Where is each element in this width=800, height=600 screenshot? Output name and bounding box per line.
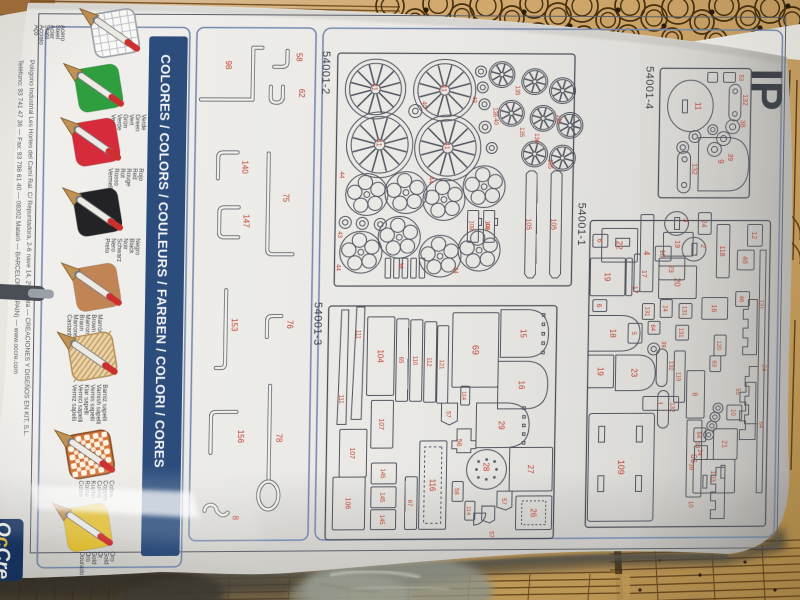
svg-text:114: 114 bbox=[465, 506, 471, 515]
svg-text:20: 20 bbox=[673, 278, 682, 287]
svg-text:19: 19 bbox=[596, 367, 605, 376]
svg-text:AceroSteelAcierStahlAcciaioAço: AceroSteelAcierStahlAcciaioAço bbox=[32, 25, 66, 46]
svg-text:17: 17 bbox=[631, 286, 638, 294]
svg-text:IP: IP bbox=[741, 69, 791, 111]
svg-text:132: 132 bbox=[668, 402, 674, 413]
svg-text:54001-3: 54001-3 bbox=[311, 302, 324, 346]
svg-text:27: 27 bbox=[526, 465, 535, 474]
svg-text:78: 78 bbox=[274, 434, 283, 443]
svg-text:48: 48 bbox=[741, 256, 748, 264]
svg-text:55: 55 bbox=[734, 388, 740, 395]
svg-text:75: 75 bbox=[281, 193, 290, 202]
svg-text:41: 41 bbox=[443, 142, 450, 150]
svg-text:4: 4 bbox=[642, 251, 651, 256]
svg-text:5: 5 bbox=[630, 332, 636, 336]
svg-text:136: 136 bbox=[533, 133, 539, 144]
svg-text:44: 44 bbox=[338, 172, 344, 179]
svg-text:44: 44 bbox=[334, 264, 340, 271]
svg-text:OroGoldOrGoldOroDourado: OroGoldOrGoldOroDourado bbox=[78, 551, 116, 576]
svg-text:38: 38 bbox=[739, 120, 746, 128]
svg-text:106: 106 bbox=[344, 498, 351, 510]
svg-text:40: 40 bbox=[420, 101, 426, 108]
svg-text:69: 69 bbox=[470, 345, 480, 355]
svg-text:15: 15 bbox=[519, 329, 528, 338]
svg-text:147: 147 bbox=[241, 214, 250, 228]
svg-text:64: 64 bbox=[695, 432, 701, 439]
svg-text:6: 6 bbox=[595, 304, 602, 308]
svg-text:43: 43 bbox=[470, 96, 476, 103]
svg-text:63: 63 bbox=[710, 360, 716, 367]
svg-text:19: 19 bbox=[603, 273, 612, 282]
svg-text:132: 132 bbox=[690, 163, 697, 175]
svg-text:16: 16 bbox=[517, 381, 526, 390]
svg-text:132: 132 bbox=[741, 94, 748, 106]
svg-text:145: 145 bbox=[378, 515, 384, 526]
svg-text:NegroBlackNoirSchwarzNeroPreto: NegroBlackNoirSchwarzNeroPreto bbox=[103, 238, 141, 262]
svg-text:57: 57 bbox=[444, 411, 450, 418]
svg-text:41: 41 bbox=[370, 83, 377, 91]
svg-text:135: 135 bbox=[546, 159, 552, 170]
svg-text:153: 153 bbox=[230, 318, 239, 332]
svg-text:107: 107 bbox=[348, 447, 355, 459]
svg-text:57: 57 bbox=[487, 531, 493, 538]
svg-text:111: 111 bbox=[354, 330, 360, 340]
svg-text:62: 62 bbox=[297, 89, 306, 98]
svg-text:156: 156 bbox=[236, 430, 245, 444]
svg-text:140: 140 bbox=[240, 160, 249, 174]
svg-text:Barniz sapelliVarnish sapelliV: Barniz sapelliVarnish sapelliVernis sape… bbox=[70, 384, 108, 424]
svg-text:108: 108 bbox=[467, 220, 473, 231]
svg-text:OcCre: OcCre bbox=[0, 522, 13, 579]
svg-text:41: 41 bbox=[440, 84, 447, 92]
svg-text:114: 114 bbox=[460, 391, 466, 400]
svg-text:39: 39 bbox=[687, 463, 693, 470]
svg-text:36: 36 bbox=[397, 262, 403, 269]
svg-text:135: 135 bbox=[518, 127, 524, 138]
svg-text:CobreCopperCuivreKupferRameCob: CobreCopperCuivreKupferRameCobre bbox=[77, 480, 115, 501]
svg-text:131: 131 bbox=[680, 306, 686, 317]
svg-text:132: 132 bbox=[667, 361, 673, 372]
svg-text:11: 11 bbox=[693, 102, 702, 111]
svg-text:76: 76 bbox=[285, 320, 294, 329]
svg-text:111: 111 bbox=[337, 395, 343, 405]
svg-text:136: 136 bbox=[491, 107, 497, 118]
svg-text:43: 43 bbox=[336, 231, 342, 238]
svg-text:116: 116 bbox=[428, 479, 437, 492]
svg-text:54001-4: 54001-4 bbox=[643, 66, 656, 109]
svg-text:24: 24 bbox=[696, 449, 702, 456]
svg-text:2: 2 bbox=[699, 244, 706, 248]
svg-text:28: 28 bbox=[481, 462, 490, 471]
svg-text:105: 105 bbox=[549, 218, 556, 230]
svg-text:135: 135 bbox=[555, 114, 561, 125]
svg-text:121: 121 bbox=[438, 359, 444, 370]
svg-text:145: 145 bbox=[379, 468, 385, 479]
svg-text:57: 57 bbox=[500, 498, 506, 505]
svg-text:39: 39 bbox=[660, 341, 666, 348]
svg-text:46: 46 bbox=[738, 296, 744, 303]
svg-text:Teléfono: 93 741 47 36 — Fax:: Teléfono: 93 741 47 36 — Fax: 93 798 61 … bbox=[12, 60, 24, 375]
svg-text:98: 98 bbox=[224, 61, 233, 70]
svg-text:112: 112 bbox=[425, 357, 431, 367]
svg-text:103: 103 bbox=[709, 470, 716, 482]
svg-text:119: 119 bbox=[674, 372, 680, 382]
svg-text:53: 53 bbox=[737, 74, 743, 81]
svg-text:24: 24 bbox=[700, 220, 707, 228]
svg-text:41: 41 bbox=[375, 139, 382, 147]
svg-text:120: 120 bbox=[715, 340, 721, 351]
svg-text:39: 39 bbox=[726, 153, 733, 161]
svg-text:131: 131 bbox=[677, 328, 683, 339]
svg-text:24: 24 bbox=[760, 365, 766, 372]
svg-text:10: 10 bbox=[729, 409, 735, 416]
svg-text:104: 104 bbox=[376, 350, 385, 364]
svg-text:64: 64 bbox=[649, 324, 655, 331]
svg-text:1: 1 bbox=[656, 401, 663, 405]
svg-text:109: 109 bbox=[616, 460, 626, 475]
svg-text:3: 3 bbox=[682, 219, 689, 223]
svg-text:23: 23 bbox=[629, 368, 638, 377]
svg-text:58: 58 bbox=[294, 53, 303, 62]
svg-text:105: 105 bbox=[524, 218, 531, 230]
svg-text:29: 29 bbox=[497, 421, 506, 430]
svg-text:44: 44 bbox=[452, 267, 458, 274]
svg-text:18: 18 bbox=[608, 329, 617, 338]
svg-text:24: 24 bbox=[661, 305, 667, 312]
svg-text:9: 9 bbox=[716, 159, 725, 164]
svg-text:56: 56 bbox=[455, 439, 462, 447]
svg-text:135: 135 bbox=[514, 86, 520, 97]
svg-text:118: 118 bbox=[718, 246, 725, 257]
svg-text:10: 10 bbox=[687, 501, 693, 508]
svg-text:58: 58 bbox=[453, 488, 459, 495]
svg-text:131: 131 bbox=[757, 299, 763, 310]
svg-text:64: 64 bbox=[757, 422, 763, 429]
svg-text:21: 21 bbox=[720, 440, 727, 448]
svg-text:19: 19 bbox=[673, 240, 680, 248]
svg-text:40: 40 bbox=[492, 118, 498, 125]
svg-text:12: 12 bbox=[750, 232, 757, 240]
svg-text:54001-2: 54001-2 bbox=[319, 51, 332, 95]
svg-text:23: 23 bbox=[667, 265, 674, 273]
svg-text:67: 67 bbox=[406, 500, 412, 507]
svg-text:145: 145 bbox=[378, 492, 384, 503]
svg-text:65: 65 bbox=[397, 357, 403, 364]
svg-text:22: 22 bbox=[615, 241, 624, 250]
svg-text:16: 16 bbox=[710, 305, 717, 313]
svg-text:26: 26 bbox=[529, 508, 538, 517]
svg-text:131: 131 bbox=[643, 307, 649, 318]
svg-text:17: 17 bbox=[640, 270, 647, 278]
svg-text:8: 8 bbox=[691, 392, 698, 396]
svg-text:108: 108 bbox=[483, 220, 489, 231]
svg-text:6: 6 bbox=[595, 239, 602, 243]
svg-text:110: 110 bbox=[411, 356, 417, 366]
svg-text:54001-1: 54001-1 bbox=[575, 203, 588, 246]
svg-text:107: 107 bbox=[377, 418, 384, 430]
svg-text:44: 44 bbox=[427, 177, 433, 184]
svg-text:8: 8 bbox=[231, 516, 240, 521]
